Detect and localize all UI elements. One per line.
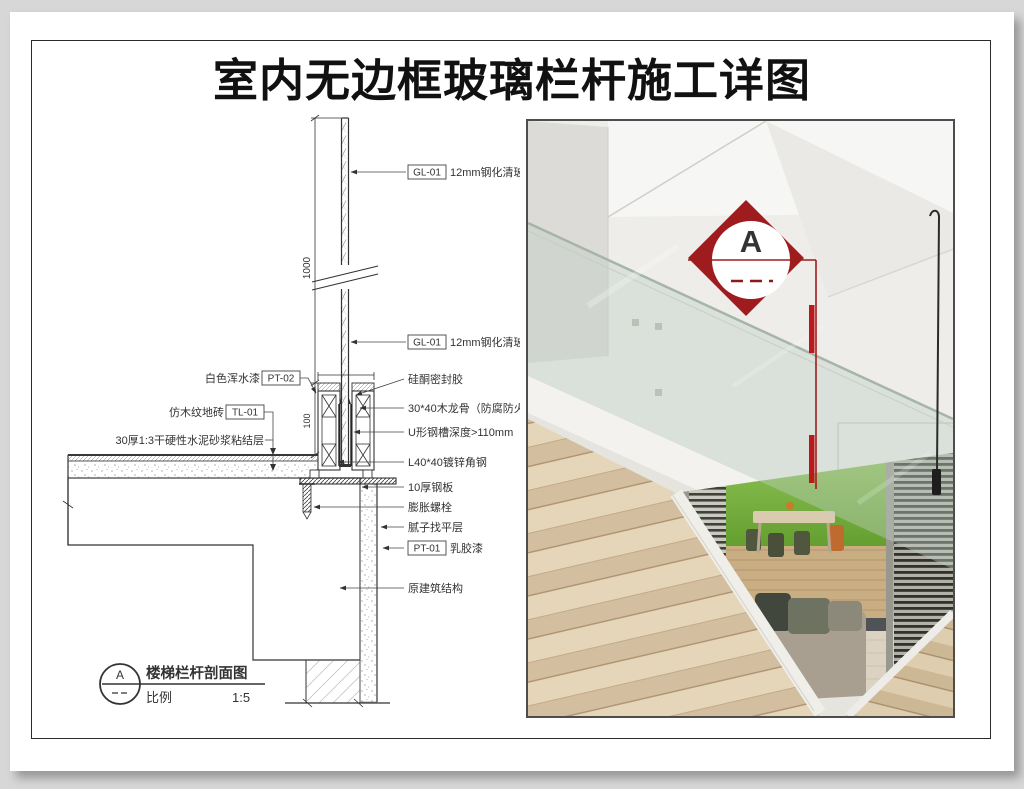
left-blocking-box: [318, 391, 340, 470]
callout-leveling: 腻子找平层: [408, 520, 463, 534]
pendant-fixture: [932, 469, 941, 495]
tag-gl01: GL-01: [413, 338, 441, 349]
concrete-slab-hatch: [68, 478, 360, 660]
tag-pt02: PT-02: [268, 374, 295, 385]
dim-1000: 1000: [302, 256, 313, 279]
tag-gl01: GL-01: [413, 168, 441, 179]
callout-structure: 原建筑结构: [408, 581, 463, 595]
callout-joist: 30*40木龙骨（防腐防火处理）: [408, 401, 520, 415]
callout-bolt: 膨胀螺栓: [408, 500, 452, 514]
marker-letter: A: [740, 224, 762, 259]
mortar-bed-layer: [68, 461, 318, 478]
callout-angle-steel: L40*40镀锌角钢: [408, 455, 487, 469]
dim-100: 100: [302, 413, 312, 428]
detail-title: 楼梯栏杆剖面图: [146, 664, 248, 682]
tag-tl01: TL-01: [232, 408, 259, 419]
detail-title-block: A 楼梯栏杆剖面图 比例 1:5: [100, 664, 265, 705]
table-flowers: [786, 502, 794, 510]
callout-white-paint: 白色浑水漆: [205, 371, 260, 385]
callout-glass-1: 12mm钢化清玻: [450, 165, 520, 179]
glass-location-bar: [809, 435, 815, 483]
callout-channel: U形钢槽深度>110mm: [408, 425, 513, 439]
glass-location-bar: [809, 305, 815, 353]
sofa-cushion: [828, 601, 862, 631]
dining-table: [753, 511, 835, 523]
page-title: 室内无边框玻璃栏杆施工详图: [10, 44, 1014, 109]
wall-finish-band: [360, 484, 377, 702]
screenshot-canvas: 室内无边框玻璃栏杆施工详图: [0, 0, 1024, 789]
callout-sealant: 硅酮密封胶: [408, 372, 463, 386]
floor-tile-layer: [68, 455, 318, 461]
angle-steel-right: [363, 470, 372, 478]
section-detail-drawing: 1000 100 GL-01 12mm钢化清玻 GL-01 12mm钢化清玻 硅…: [60, 108, 520, 733]
callout-steel-plate: 10厚钢板: [408, 480, 453, 494]
break-gap: [334, 265, 356, 289]
tag-pt01: PT-01: [414, 544, 441, 555]
expansion-bolt: [299, 484, 315, 519]
left-cap: [318, 383, 340, 391]
drawing-sheet: 室内无边框玻璃栏杆施工详图: [10, 12, 1014, 771]
scale-value: 1:5: [232, 690, 250, 705]
scale-label: 比例: [146, 690, 172, 705]
steel-base-plate: [300, 478, 396, 484]
callout-glass-2: 12mm钢化清玻: [450, 335, 520, 349]
lower-column: [306, 660, 360, 703]
angle-steel-left: [310, 470, 319, 478]
callout-mortar: 30厚1:3干硬性水泥砂浆粘结层: [115, 433, 264, 447]
detail-marker-letter: A: [116, 668, 124, 682]
right-blocking-box: [352, 391, 374, 470]
sofa-cushion: [788, 598, 830, 634]
photo-illustration: A: [528, 121, 953, 716]
reference-photo: A: [526, 119, 955, 718]
callout-latex-paint: 乳胶漆: [450, 541, 483, 555]
callout-wood-tile: 仿木纹地砖: [169, 405, 224, 419]
